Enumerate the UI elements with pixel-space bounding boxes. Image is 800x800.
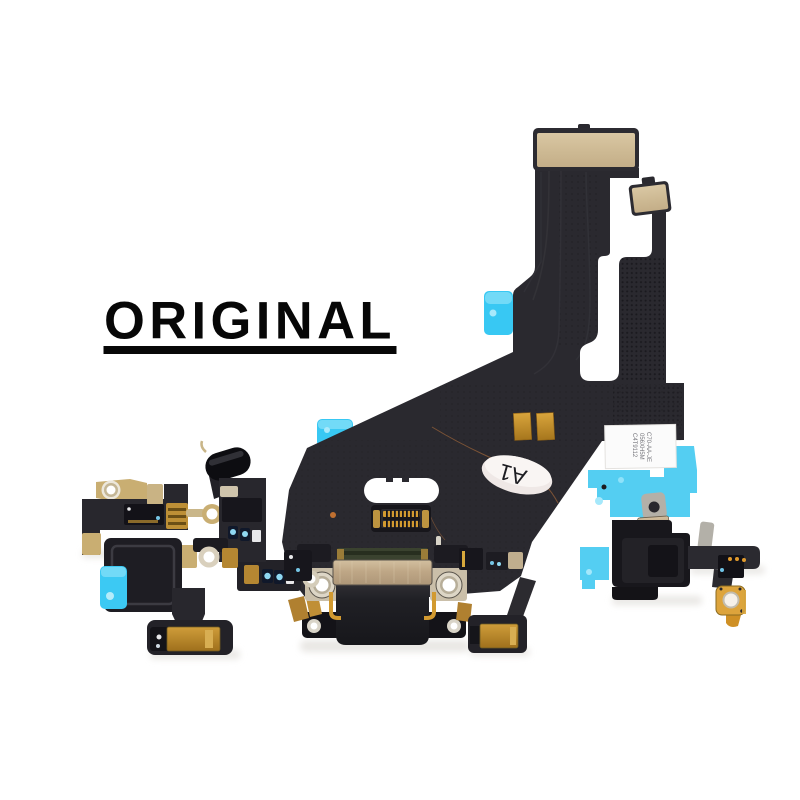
svg-text:C70-AA-JE: C70-AA-JE bbox=[645, 432, 651, 462]
svg-text:056XH5M: 056XH5M bbox=[638, 433, 644, 460]
svg-text:C4T9112: C4T9112 bbox=[631, 433, 637, 458]
svg-text:ORIGINAL: ORIGINAL bbox=[104, 292, 396, 351]
